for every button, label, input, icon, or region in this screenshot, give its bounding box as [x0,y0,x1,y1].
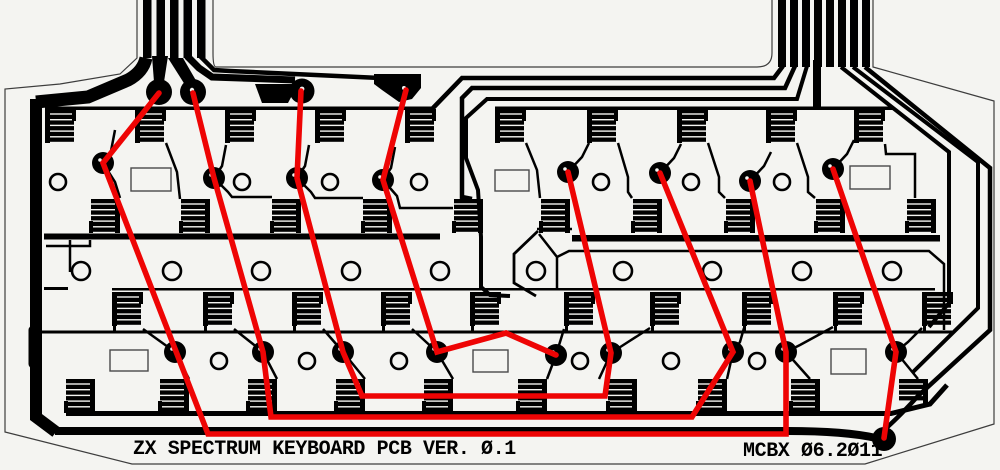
svg-text:ZX SPECTRUM KEYBOARD PCB VER.: ZX SPECTRUM KEYBOARD PCB VER. Ø.1 [133,438,516,461]
svg-text:MCBX Ø6.2Ø11: MCBX Ø6.2Ø11 [743,440,883,463]
